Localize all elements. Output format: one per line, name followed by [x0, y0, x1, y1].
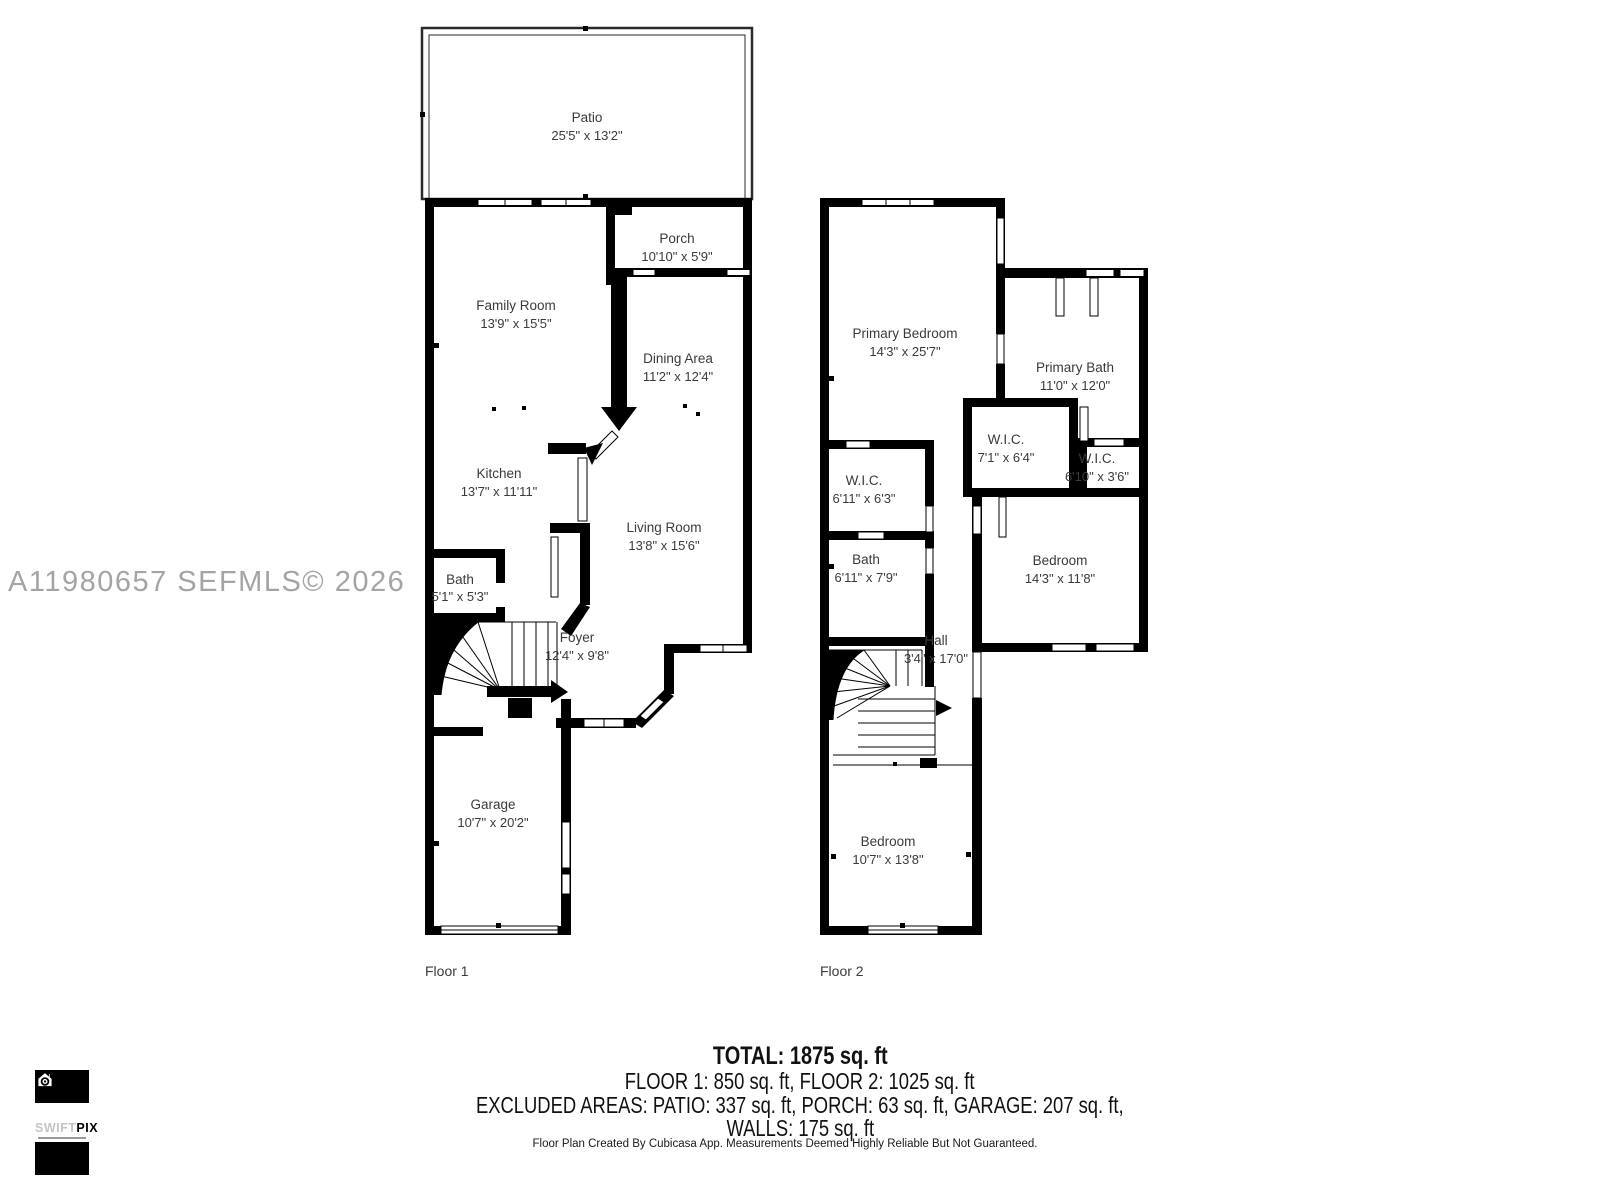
room-dims-dining-area: 11'2" x 12'4"	[643, 369, 714, 384]
room-label-wic-2: W.I.C.	[1079, 451, 1116, 466]
room-dims-wic-3: 6'11" x 6'3"	[832, 491, 895, 506]
summary-total: TOTAL: 1875 sq. ft	[713, 1042, 888, 1070]
room-dims-primary-bedroom: 14'3" x 25'7"	[869, 344, 941, 359]
room-dims-patio: 25'5" x 13'2"	[551, 128, 623, 143]
summary-walls: WALLS: 175 sq. ft	[726, 1117, 874, 1141]
room-label-kitchen: Kitchen	[476, 466, 521, 481]
disclaimer-text: Floor Plan Created By Cubicasa App. Meas…	[0, 1138, 1570, 1150]
room-dims-wic-1: 7'1" x 6'4"	[978, 450, 1035, 465]
floor1-plan: Patio 25'5" x 13'2" Porch 10'10" x 5'9" …	[420, 26, 752, 979]
summary-excluded: EXCLUDED AREAS: PATIO: 337 sq. ft, PORCH…	[476, 1094, 1124, 1118]
room-label-primary-bath: Primary Bath	[1036, 360, 1114, 375]
room-label-family-room: Family Room	[476, 298, 556, 313]
room-label-bedroom2: Bedroom	[1033, 553, 1088, 568]
room-label-living-room: Living Room	[626, 520, 701, 535]
room-dims-foyer: 12'4" x 9'8"	[545, 648, 609, 663]
room-dims-bath2: 6'11" x 7'9"	[834, 570, 897, 585]
area-summary: TOTAL: 1875 sq. ft FLOOR 1: 850 sq. ft, …	[0, 1042, 1600, 1141]
room-dims-hall: 3'4" x 17'0"	[904, 651, 968, 666]
logo-tagline-strip	[38, 1137, 86, 1139]
room-dims-family-room: 13'9" x 15'5"	[480, 316, 552, 331]
summary-floors: FLOOR 1: 850 sq. ft, FLOOR 2: 1025 sq. f…	[625, 1070, 975, 1094]
room-label-primary-bedroom: Primary Bedroom	[852, 326, 957, 341]
room-label-patio: Patio	[572, 110, 603, 125]
floor2-label: Floor 2	[820, 963, 864, 979]
floorplan-page: Patio 25'5" x 13'2" Porch 10'10" x 5'9" …	[0, 0, 1600, 1200]
room-label-wic-1: W.I.C.	[988, 432, 1025, 447]
room-label-bedroom3: Bedroom	[861, 834, 916, 849]
room-dims-wic-2: 6'10" x 3'6"	[1065, 469, 1129, 484]
swiftpix-logo: SWIFTPIX	[35, 1070, 89, 1175]
house-camera-icon	[35, 1104, 89, 1122]
room-label-porch: Porch	[659, 231, 694, 246]
room-dims-garage: 10'7" x 20'2"	[457, 815, 529, 830]
room-label-bath2: Bath	[852, 552, 880, 567]
room-label-dining-area: Dining Area	[643, 351, 713, 366]
logo-bottom-bar	[35, 1142, 89, 1175]
room-dims-bedroom3: 10'7" x 13'8"	[852, 852, 924, 867]
room-dims-bath1: 5'1" x 5'3"	[432, 589, 489, 604]
room-label-bath1: Bath	[446, 572, 474, 587]
room-dims-porch: 10'10" x 5'9"	[641, 249, 713, 264]
room-dims-kitchen: 13'7" x 11'11"	[461, 484, 538, 499]
floor1-label: Floor 1	[425, 963, 469, 979]
room-label-foyer: Foyer	[560, 630, 595, 645]
mls-watermark: A11980657 SEFMLS© 2026	[8, 566, 405, 599]
floor2-plan: Primary Bedroom 14'3" x 25'7" Primary Ba…	[820, 198, 1148, 979]
room-dims-bedroom2: 14'3" x 11'8"	[1025, 571, 1096, 586]
room-dims-primary-bath: 11'0" x 12'0"	[1040, 378, 1111, 393]
floor1-stairs	[434, 622, 557, 695]
floorplan-svg: Patio 25'5" x 13'2" Porch 10'10" x 5'9" …	[0, 0, 1600, 1200]
room-label-garage: Garage	[470, 797, 515, 812]
room-label-hall: Hall	[924, 633, 947, 648]
logo-brand-text: SWIFTPIX	[35, 1122, 89, 1135]
room-dims-living-room: 13'8" x 15'6"	[628, 538, 700, 553]
room-label-wic-3: W.I.C.	[846, 473, 883, 488]
